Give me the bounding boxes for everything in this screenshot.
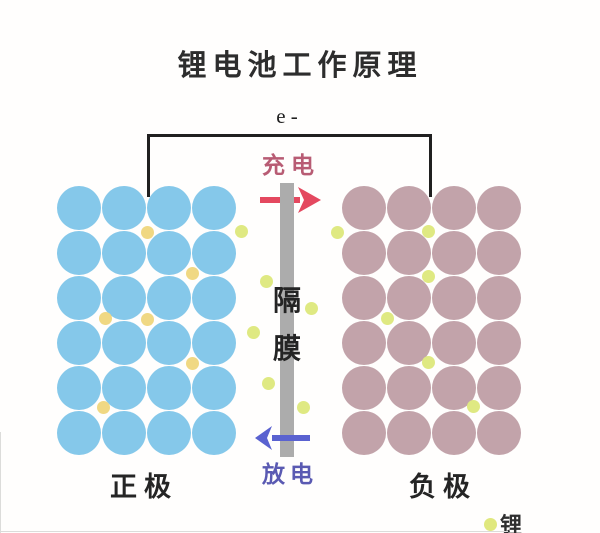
positive-particle	[57, 321, 101, 365]
negative-particle	[387, 411, 431, 455]
positive-particle	[192, 276, 236, 320]
electron-flow-label: e -	[237, 104, 337, 129]
negative-particle	[342, 186, 386, 230]
positive-particle	[57, 276, 101, 320]
negative-particle	[387, 321, 431, 365]
negative-particle	[342, 231, 386, 275]
negative-particle	[387, 276, 431, 320]
positive-particle	[192, 366, 236, 410]
negative-particle	[432, 276, 476, 320]
negative-particle	[432, 411, 476, 455]
positive-particle	[57, 186, 101, 230]
lithium-ion-icon	[235, 225, 248, 238]
lithium-dot-icon	[484, 518, 497, 531]
negative-electrode-label: 负极	[383, 465, 503, 504]
positive-particle	[147, 366, 191, 410]
positive-particle	[147, 276, 191, 320]
positive-particle	[147, 231, 191, 275]
positive-particle	[192, 231, 236, 275]
positive-electrode-particles	[57, 186, 236, 455]
negative-particle	[432, 231, 476, 275]
lithium-battery-diagram: 锂电池工作原理 e - 充电 隔 膜 放电 正极 负极 锂	[0, 0, 600, 533]
negative-particle	[477, 276, 521, 320]
page-title: 锂电池工作原理	[0, 42, 600, 84]
negative-particle	[342, 411, 386, 455]
positive-particle	[102, 276, 146, 320]
positive-particle	[192, 411, 236, 455]
negative-particle	[477, 366, 521, 410]
negative-particle	[432, 321, 476, 365]
negative-particle	[387, 231, 431, 275]
positive-particle	[102, 231, 146, 275]
negative-particle	[477, 186, 521, 230]
positive-particle	[147, 411, 191, 455]
positive-particle	[192, 321, 236, 365]
lithium-ion-icon	[297, 401, 310, 414]
lithium-ion-icon	[247, 326, 260, 339]
separator-char-1: 隔	[271, 288, 303, 316]
lithium-legend: 锂	[484, 508, 522, 533]
negative-particle	[342, 366, 386, 410]
discharge-label: 放电	[235, 455, 345, 489]
separator-char-2: 膜	[271, 336, 303, 364]
positive-particle	[102, 366, 146, 410]
lithium-ion-icon	[260, 275, 273, 288]
negative-particle	[477, 321, 521, 365]
negative-particle	[432, 186, 476, 230]
bottom-edge-line	[0, 531, 508, 532]
positive-particle	[147, 321, 191, 365]
positive-particle	[102, 411, 146, 455]
negative-electrode-particles	[342, 186, 521, 455]
positive-particle	[192, 186, 236, 230]
lithium-ion-icon	[305, 302, 318, 315]
negative-particle	[342, 321, 386, 365]
discharge-arrow-icon	[254, 424, 312, 452]
positive-particle	[57, 366, 101, 410]
separator-label: 隔 膜	[271, 288, 303, 364]
negative-particle	[432, 366, 476, 410]
negative-particle	[387, 186, 431, 230]
lithium-legend-label: 锂	[500, 508, 522, 533]
negative-particle	[342, 276, 386, 320]
negative-particle	[477, 231, 521, 275]
left-edge-line	[0, 432, 1, 533]
positive-electrode-label: 正极	[84, 465, 204, 504]
negative-particle	[387, 366, 431, 410]
positive-particle	[57, 411, 101, 455]
positive-particle	[147, 186, 191, 230]
positive-particle	[57, 231, 101, 275]
charge-label: 充电	[236, 146, 346, 180]
positive-particle	[102, 321, 146, 365]
positive-particle	[102, 186, 146, 230]
negative-particle	[477, 411, 521, 455]
lithium-ion-icon	[262, 377, 275, 390]
circuit-wire-horizontal	[147, 134, 432, 137]
